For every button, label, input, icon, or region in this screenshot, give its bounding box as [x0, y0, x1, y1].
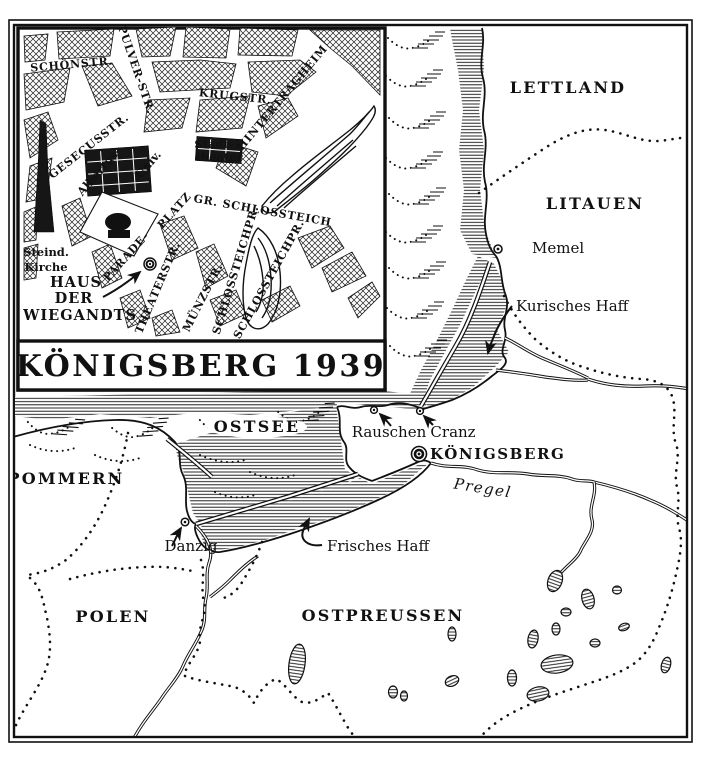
- marker-koenigsberg: [412, 447, 427, 462]
- marker-rauschen: [371, 407, 378, 414]
- label-litauen: LITAUEN: [546, 194, 644, 213]
- map-page: LETTLAND LITAUEN POMMERN OSTSEE POLEN OS…: [0, 0, 709, 773]
- inset-title: KÖNIGSBERG 1939: [16, 347, 386, 384]
- border-south: [185, 676, 358, 741]
- label-danzig: Danzig: [165, 537, 218, 555]
- border-west-a: [26, 433, 128, 575]
- label-pregel: Pregel: [452, 474, 514, 501]
- inset-map: SCHÖNSTR. PULVER-STR. KRUGSTR. HINTERTRA…: [16, 24, 386, 390]
- label-frisches-haff: Frisches Haff: [327, 537, 431, 555]
- label-lettland: LETTLAND: [510, 78, 626, 97]
- label-polen: POLEN: [75, 607, 150, 626]
- statue: [105, 213, 131, 231]
- label-kirche: Kirche: [24, 260, 67, 274]
- haus-der-wiegandts-marker: [144, 258, 156, 270]
- border-west-b: [12, 578, 50, 738]
- label-memel: Memel: [532, 239, 584, 257]
- label-koenigsberg: KÖNIGSBERG: [430, 444, 565, 463]
- label-steind: Steind.: [23, 245, 69, 259]
- marker-danzig: [181, 518, 189, 526]
- label-kurisches-haff: Kurisches Haff: [516, 297, 630, 315]
- masurian-lakes: [286, 568, 672, 703]
- label-wiegandts: WIEGANDTS: [22, 307, 137, 324]
- river-memel: [496, 338, 695, 390]
- marker-cranz: [417, 408, 424, 415]
- label-ostpreussen: OSTPREUSSEN: [302, 606, 465, 625]
- label-rauschen: Rauschen: [352, 423, 427, 441]
- label-haus: HAUS: [50, 274, 102, 291]
- label-theater: theater: [195, 150, 243, 164]
- label-cranz: Cranz: [430, 423, 475, 441]
- label-pommern: POMMERN: [8, 469, 125, 488]
- inset-title-band: KÖNIGSBERG 1939: [16, 341, 386, 390]
- label-ostsee: OSTSEE: [214, 417, 301, 436]
- marker-memel: [494, 245, 502, 253]
- river-vistula: [133, 526, 258, 740]
- label-stadt: Stadt-: [194, 137, 233, 151]
- border-lettland-litauen: [479, 129, 696, 193]
- border-west-c: [70, 567, 192, 579]
- koenigsberg-map-svg: LETTLAND LITAUEN POMMERN OSTSEE POLEN OS…: [0, 0, 709, 773]
- label-der: DER: [55, 290, 94, 307]
